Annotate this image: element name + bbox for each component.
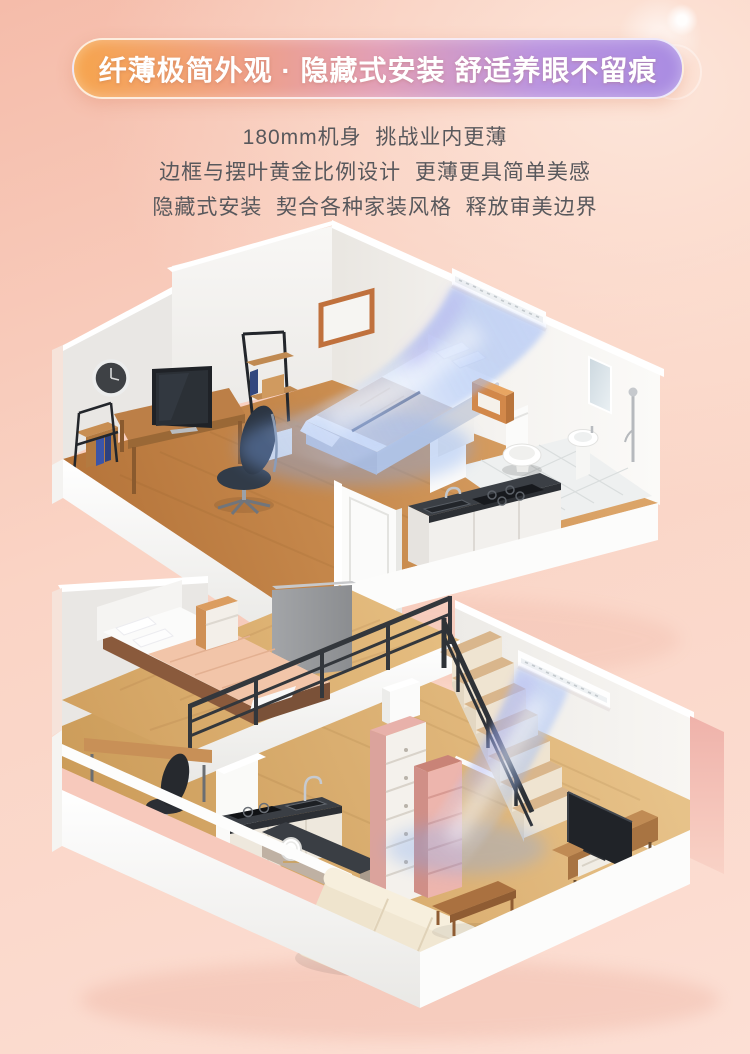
description-line-3: 隐藏式安装 契合各种家装风格 释放审美边界 bbox=[0, 190, 750, 225]
desk-tv-icon bbox=[152, 366, 212, 434]
description-line-1: 180mm机身 挑战业内更薄 bbox=[0, 120, 750, 155]
headline-banner: 纤薄极简外观 · 隐藏式安装 舒适养眼不留痕 bbox=[72, 38, 684, 99]
description-block: 180mm机身 挑战业内更薄 边框与摆叶黄金比例设计 更薄更具简单美感 隐藏式安… bbox=[0, 120, 750, 225]
nightstand-loft bbox=[196, 596, 238, 650]
upper-apartment bbox=[52, 220, 664, 641]
promo-page: 纤薄极简外观 · 隐藏式安装 舒适养眼不留痕 180mm机身 挑战业内更薄 边框… bbox=[0, 0, 750, 1054]
mirror-icon bbox=[589, 357, 611, 413]
wall-clock-icon bbox=[94, 361, 128, 395]
description-line-2: 边框与摆叶黄金比例设计 更薄更具简单美感 bbox=[0, 155, 750, 190]
headline-text: 纤薄极简外观 · 隐藏式安装 舒适养眼不留痕 bbox=[99, 49, 658, 89]
